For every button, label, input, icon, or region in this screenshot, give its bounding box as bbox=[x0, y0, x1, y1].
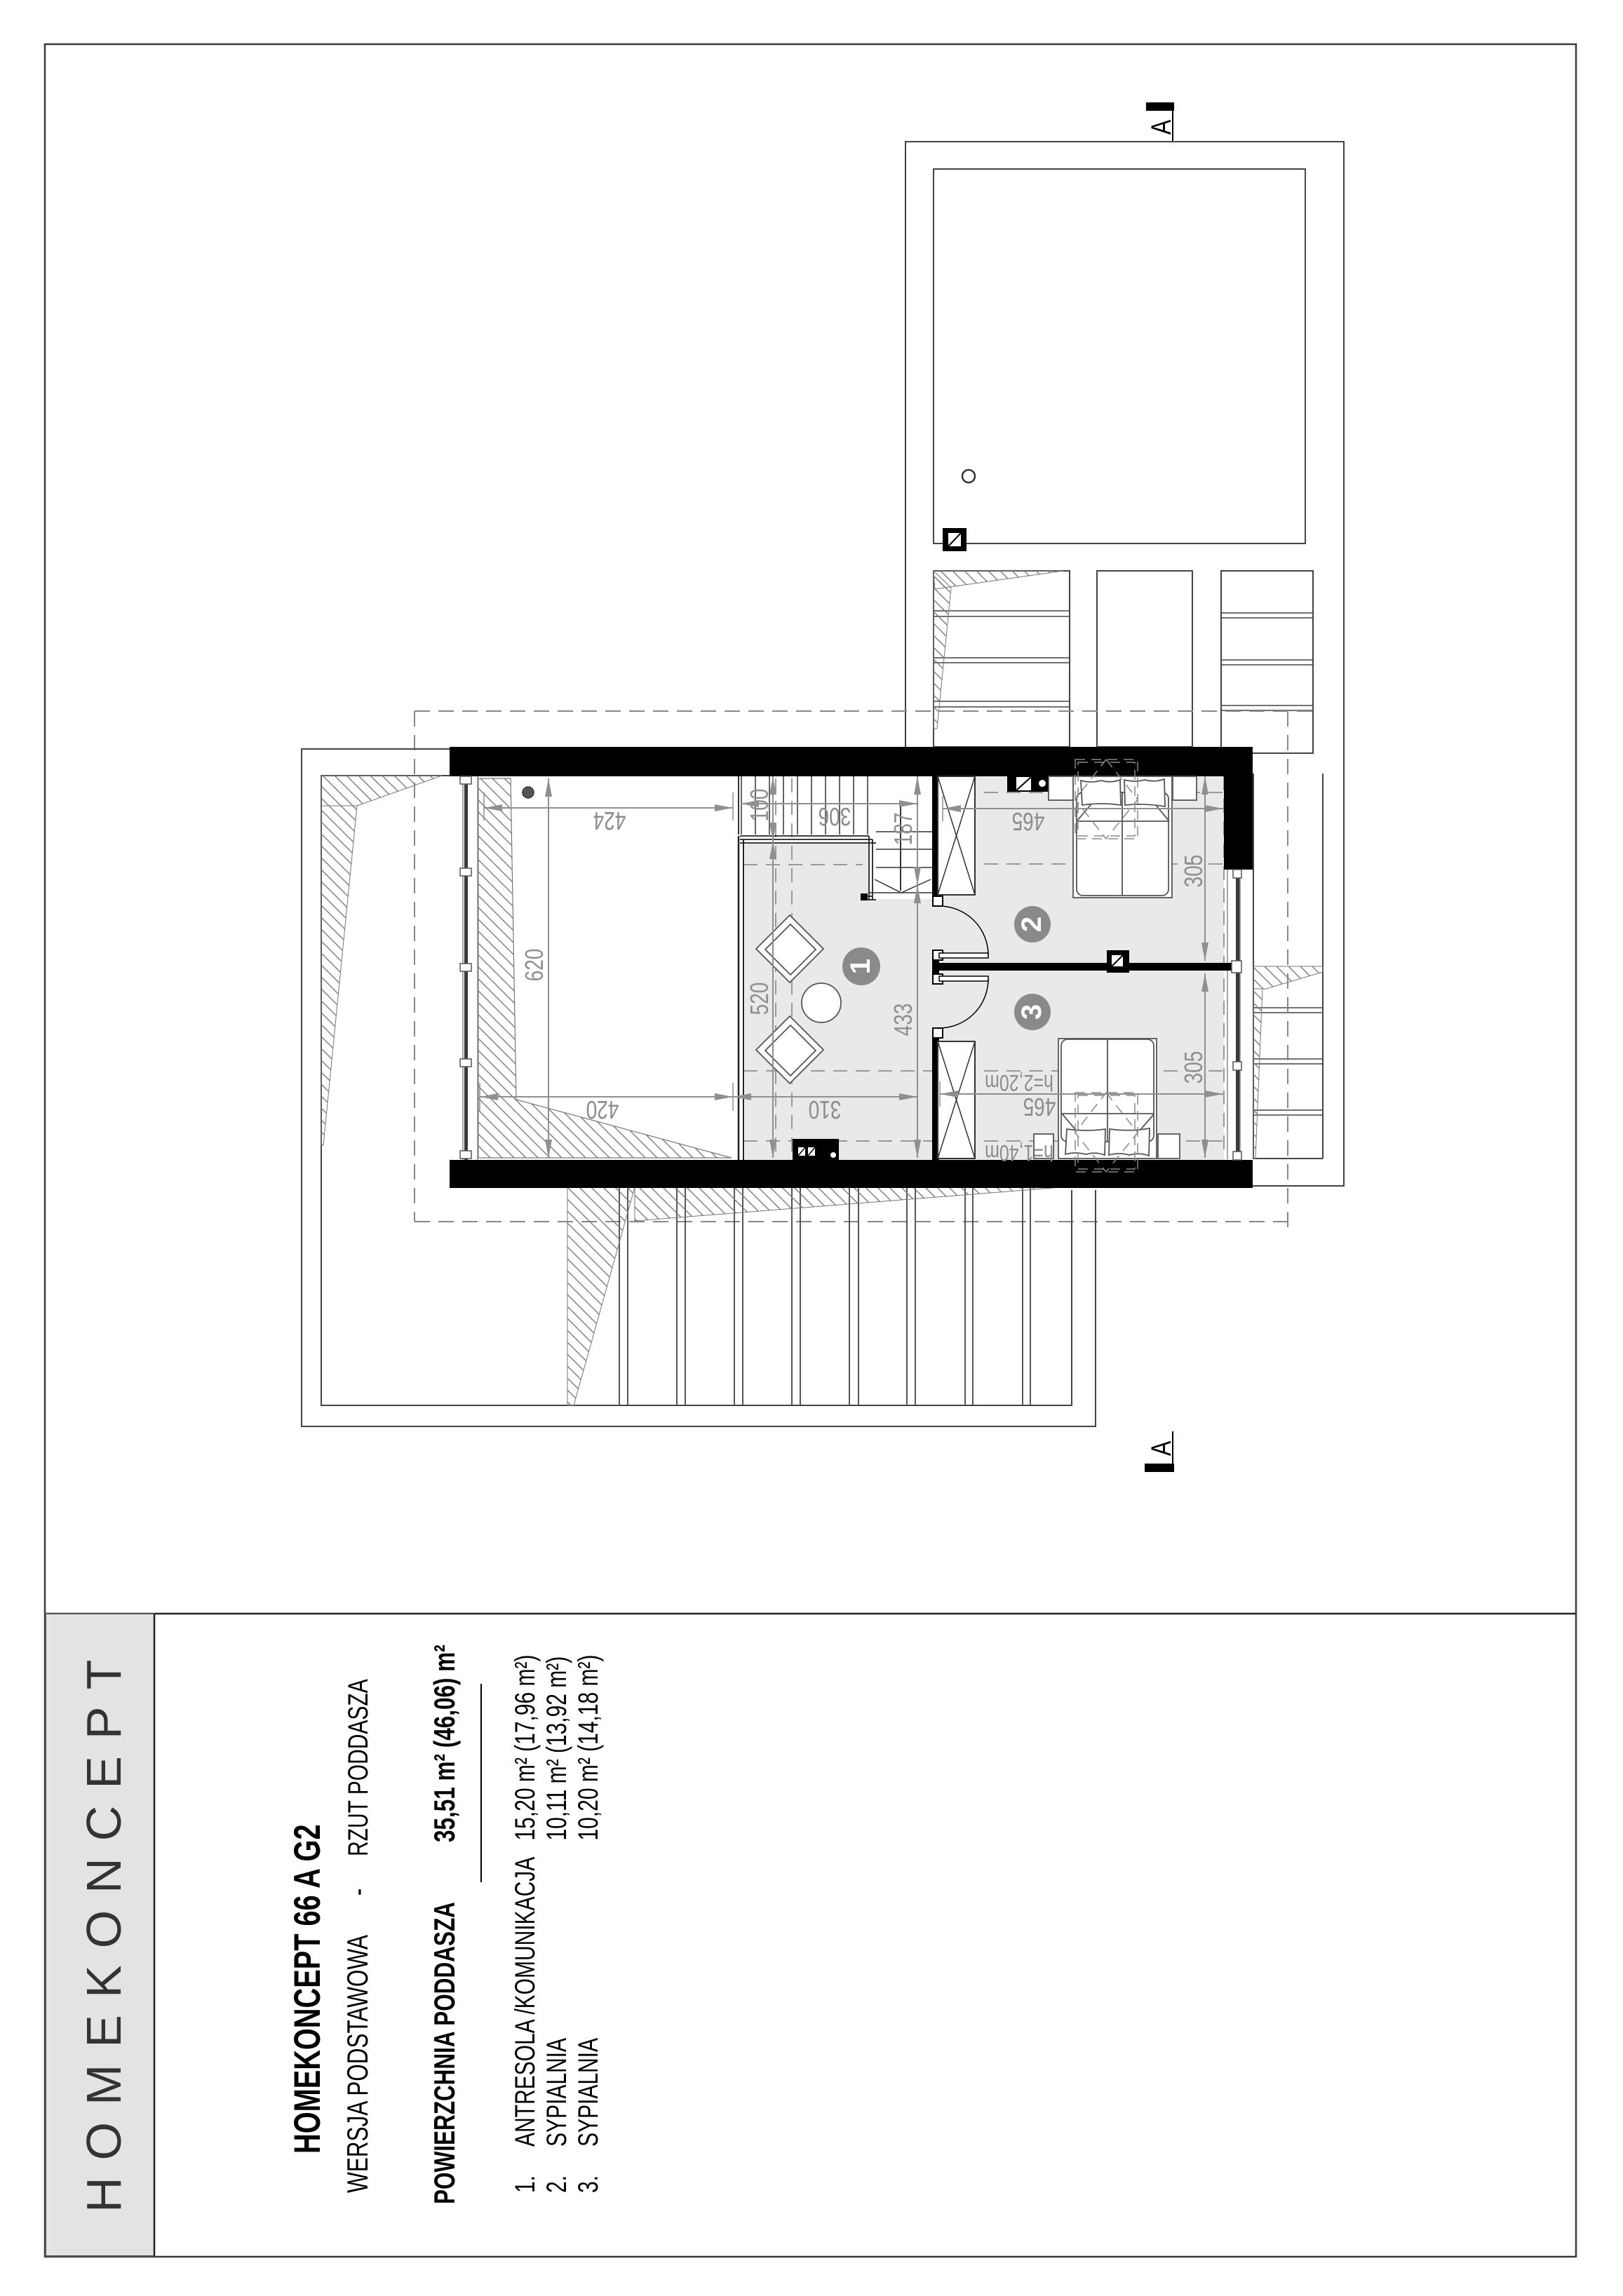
svg-text:305: 305 bbox=[1180, 855, 1208, 888]
svg-text:2: 2 bbox=[1016, 917, 1047, 932]
svg-text:187: 187 bbox=[889, 813, 917, 846]
svg-text:305: 305 bbox=[1180, 1051, 1208, 1084]
svg-text:1.ANTRESOLA /KOMUNIKACJA15,20: 1.ANTRESOLA /KOMUNIKACJA15,20 m² (17,96 … bbox=[510, 1654, 541, 2193]
svg-text:465: 465 bbox=[1012, 807, 1045, 835]
svg-text:HOMEKONCEPT: HOMEKONCEPT bbox=[76, 1643, 131, 2213]
svg-text:465: 465 bbox=[1023, 1093, 1056, 1121]
svg-text:POWIERZCHNIA PODDASZA35,51 m²: POWIERZCHNIA PODDASZA35,51 m² (46,06) m² bbox=[428, 1645, 462, 2204]
svg-text:1: 1 bbox=[845, 959, 876, 974]
svg-text:433: 433 bbox=[889, 1004, 917, 1036]
svg-text:3: 3 bbox=[1016, 1004, 1047, 1020]
svg-text:520: 520 bbox=[746, 982, 774, 1015]
svg-text:424: 424 bbox=[593, 806, 626, 835]
svg-text:620: 620 bbox=[520, 949, 548, 982]
svg-text:h=2,20m: h=2,20m bbox=[985, 1069, 1053, 1095]
svg-text:HOMEKONCEPT 66 A G2: HOMEKONCEPT 66 A G2 bbox=[286, 1824, 328, 2154]
svg-text:420: 420 bbox=[586, 1095, 619, 1123]
svg-text:A: A bbox=[1145, 119, 1177, 135]
svg-text:100: 100 bbox=[746, 789, 774, 822]
svg-text:310: 310 bbox=[809, 1095, 842, 1123]
svg-text:306: 306 bbox=[819, 802, 851, 830]
svg-text:WERSJA PODSTAWOWA-RZUT PODDAS: WERSJA PODSTAWOWA-RZUT PODDASZA bbox=[341, 1679, 375, 2193]
svg-text:h=1,40m: h=1,40m bbox=[985, 1140, 1053, 1165]
svg-text:A: A bbox=[1145, 1440, 1177, 1456]
